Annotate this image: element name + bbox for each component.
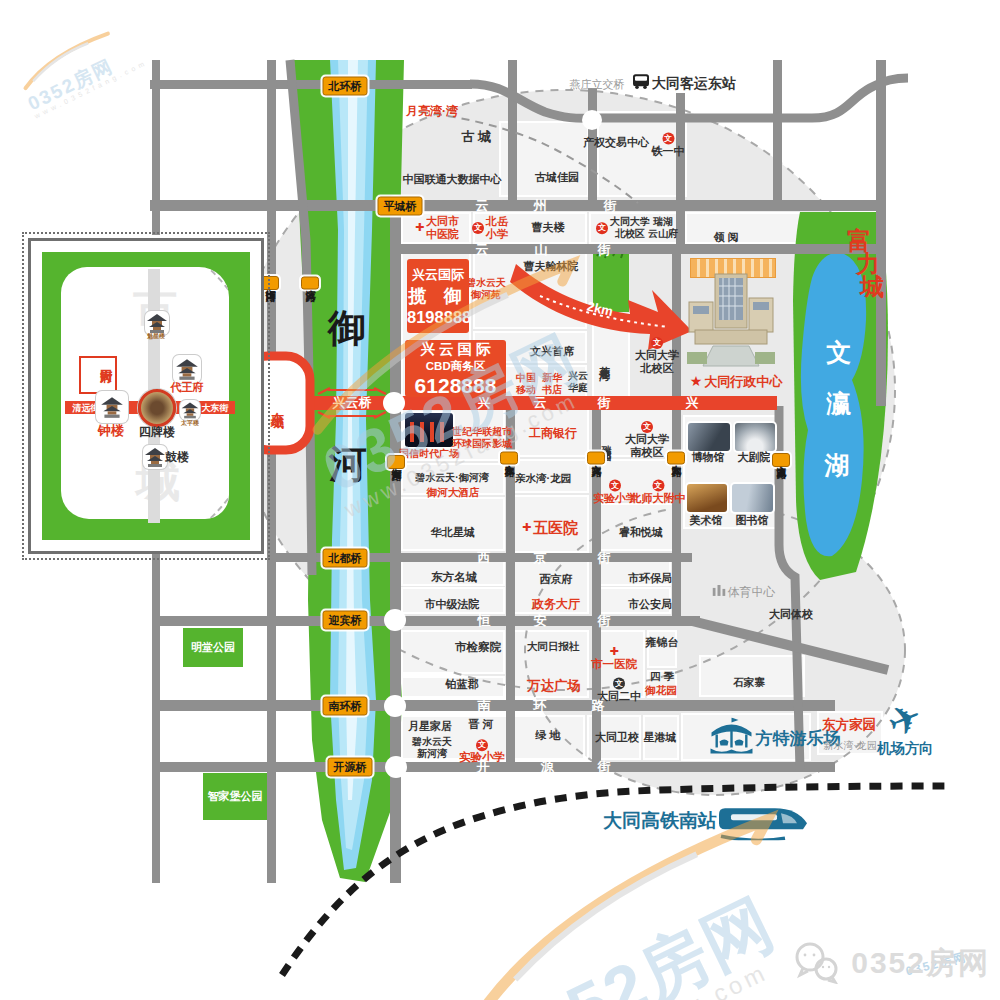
poi-yuexing-jiaju: 月星家居 xyxy=(408,720,452,733)
poi-tieyizhong: 文铁一中 xyxy=(652,133,685,158)
poi-lingyue: 领 阅 xyxy=(713,231,738,244)
daiwangfu-icon xyxy=(173,355,201,383)
poi-label: 大同大学 北校区 xyxy=(610,216,650,240)
poi-guchengjiayuan: 古城佳园 xyxy=(535,171,579,184)
poi-label: 西京府 xyxy=(540,573,573,586)
poi-label: 政务大厅 xyxy=(532,597,580,611)
poi-label: 大同高铁南站 xyxy=(603,810,717,832)
photo-label-tushuguan: 图书馆 xyxy=(736,514,769,527)
inset-poi-sipailou: 四牌楼 xyxy=(139,425,175,439)
poi-label: 铁一中 xyxy=(652,145,685,158)
poi-yuhuayuan: 御花园 xyxy=(645,684,677,696)
dato-fujie-stamp: 大同府街 xyxy=(79,356,117,394)
poi-label: 大同日报社 xyxy=(527,640,580,652)
inset-poi-daiwangfu: 代王府 xyxy=(171,381,204,394)
adbox-lanyu: 兴云国际揽 御8198888 xyxy=(407,259,469,333)
street-char: 云 xyxy=(534,394,547,412)
park-label: 智家堡公园 xyxy=(208,789,263,804)
street-char: 环 xyxy=(534,697,547,715)
poi-lvdi: 绿 地 xyxy=(535,729,560,742)
poi-label: 北岳 小学 xyxy=(486,215,508,241)
poi-label: 中国联通大数据中心 xyxy=(403,173,502,186)
poi-jichang-fangxiang: ✈机场方向 xyxy=(877,700,933,757)
bridge-label: 北环桥 xyxy=(323,77,368,96)
poi-yanzhuang: 燕庄立交桥 xyxy=(570,78,625,91)
poi-gaotie-nanzhan: 大同高铁南站 xyxy=(603,796,809,845)
poi-label: 万达广场 xyxy=(527,678,581,694)
poi-caofulou: 曹夫楼 xyxy=(532,221,565,234)
street-char: 街 xyxy=(598,394,611,412)
poi-shiji-hualian: 世纪华联超市 环球国际影城 xyxy=(452,426,512,450)
poi-label: 曹夫翰林院 xyxy=(524,260,579,273)
poi-bishui-yuheyuan: 碧水云天 御河苑 xyxy=(466,277,506,301)
school-icon: 文 xyxy=(651,337,663,349)
poi-keyun-dongzhan: 大同客运东站 xyxy=(632,73,736,93)
poi-fangte: 方特游乐场 xyxy=(710,717,841,760)
poi-label: 睿和悦城 xyxy=(619,526,663,539)
poi-datong-tixiao: 大同体校 xyxy=(769,608,813,621)
poi-label: 国信时代广场 xyxy=(399,448,459,460)
poi-label: 月亮湾·湾 xyxy=(406,104,458,118)
lake-char: 文 xyxy=(827,338,852,368)
poi-label: 市环保局 xyxy=(628,572,672,585)
street-char: 路 xyxy=(592,697,605,715)
adbox-line: 揽 御 xyxy=(407,284,469,308)
poi-dongfang-jiayuan: 东方家园 xyxy=(822,717,876,733)
star-icon: ★ xyxy=(690,373,703,390)
street-char: 街 xyxy=(598,758,611,776)
poi-gonganju: 市公安局 xyxy=(628,598,672,611)
poi-ruixing-huayuan: 瑞兴花园 xyxy=(600,437,612,445)
inset-poi-gulou: 鼓楼 xyxy=(165,450,189,464)
poi-label: 古城佳园 xyxy=(535,171,579,184)
poi-huanbaoju: 市环保局 xyxy=(628,572,672,585)
adbox-line: 8198888 xyxy=(407,308,469,327)
lake-char: 湖 xyxy=(825,451,850,481)
park-mingtang: 明堂公园 xyxy=(183,628,243,667)
photo-label-dajuyuan: 大剧院 xyxy=(738,451,771,464)
bridge-label: 开源桥 xyxy=(328,758,373,777)
road-label: 永和路 xyxy=(500,452,518,465)
school-icon: 文 xyxy=(472,222,484,234)
taipinglou-icon xyxy=(180,400,200,420)
poi-label: 四 季 xyxy=(650,670,674,682)
poi-yongjintai: 雍锦台 xyxy=(646,636,679,649)
site-logo-text: 0352房网 xyxy=(851,943,990,984)
road-label: 御河东路 xyxy=(387,455,405,469)
poi-label: 中国 移动 xyxy=(516,372,536,396)
poi-label: 新水湾·龙园 xyxy=(823,740,876,752)
poi-xingyun-huating: 兴云 华庭 xyxy=(568,370,588,394)
poi-beiyue-xiaoxue: 文北岳 小学 xyxy=(472,215,508,241)
poi-label: 东方名城 xyxy=(431,571,477,585)
photo-label-meishuguan: 美术馆 xyxy=(690,514,723,527)
poi-label: 晋 河 xyxy=(468,718,493,731)
poi-ribaoshe: 大同日报社 xyxy=(527,640,580,652)
poi-wenxing-shouxi: 文兴首席 xyxy=(530,345,574,358)
poi-huabei-xingcheng: 华北星城 xyxy=(431,526,475,539)
bus-icon xyxy=(632,73,650,93)
poi-label: 绿 地 xyxy=(535,729,560,742)
poi-zhongguo-yidong: 中国 移动 xyxy=(516,372,536,396)
poi-label: 御河大酒店 xyxy=(427,486,480,498)
street-char: 州 xyxy=(534,197,547,215)
school-icon: 文 xyxy=(662,133,674,145)
poi-label: 世纪华联超市 环球国际影城 xyxy=(452,426,512,450)
poi-label: 产权交易中心 xyxy=(583,136,649,149)
poi-label: 大同市 中医院 xyxy=(426,215,459,241)
school-icon: 文 xyxy=(641,421,653,433)
street-char: 山 xyxy=(535,241,548,259)
inset-road-right: 大东街 xyxy=(202,403,229,414)
poi-bolanjun: 铂蓝郡 xyxy=(446,678,479,691)
park-zhijiabu: 智家堡公园 xyxy=(203,773,267,820)
poi-label: 碧水云天 御河苑 xyxy=(466,277,506,301)
poi-guoxin-shidai: 国信时代广场 xyxy=(399,448,459,460)
poi-gongshang-yinhang: 工商银行 xyxy=(529,426,577,440)
poi-zhengwu-dating: 政务大厅 xyxy=(532,597,580,611)
poi-bishui-xinhewan: 碧水云天 新河湾 xyxy=(412,736,452,760)
poi-label: 文兴首席 xyxy=(530,345,574,358)
poi-label: 大同大学 北校区 xyxy=(635,349,679,375)
adbox-cbd: 兴 云 国 际CBD商务区6128888 xyxy=(405,340,506,397)
poi-xinhua-shudian: 新华 书店 xyxy=(542,372,562,396)
poi-label: 大同大学 南校区 xyxy=(625,433,669,459)
poi-label: 市一医院 xyxy=(591,658,637,672)
poi-xingzheng-zhongxin: ★大同行政中心 xyxy=(690,373,783,390)
adbox-line: CBD商务区 xyxy=(405,359,506,374)
poi-label: 花鹿湾 xyxy=(598,357,611,363)
road-label: 滨河路 xyxy=(301,277,319,290)
bridge-label: 迎宾桥 xyxy=(323,611,368,630)
poi-label: 曹夫楼 xyxy=(532,221,565,234)
photo-label-bowuguan: 博物馆 xyxy=(692,451,725,464)
inset-poi-kuixinglou: 魁星楼 xyxy=(147,333,165,340)
poi-label: 新华 书店 xyxy=(542,372,562,396)
poi-qinshuiwan-longyuan: 亲水湾·龙园 xyxy=(515,472,571,484)
school-icon: 文 xyxy=(476,739,488,751)
poi-datong-weixiao: 大同卫校 xyxy=(595,731,639,744)
street-char: 云 xyxy=(476,241,489,259)
gym-icon xyxy=(713,585,726,599)
poi-hualuwan: 花鹿湾 xyxy=(598,357,611,363)
poi-gucheng: 古 城 xyxy=(461,129,491,144)
poi-label: 华北星城 xyxy=(431,526,475,539)
poi-label: 雍锦台 xyxy=(646,636,679,649)
datong-location-map: 古城清远街大东街大同府街魁星楼代王府钟楼四牌楼太平楼鼓楼 0352房网 www.… xyxy=(0,0,1000,1000)
old-town-inset-map: 古城清远街大东街大同府街魁星楼代王府钟楼四牌楼太平楼鼓楼 xyxy=(28,238,264,554)
hospital-icon: ✚ xyxy=(415,222,424,235)
poi-zhongyiyuan: ✚大同市 中医院 xyxy=(415,215,459,241)
poi-xinshuiwan-longyuan: 新水湾·龙园 xyxy=(823,740,876,752)
street-char: 云 xyxy=(476,197,489,215)
school-icon: 文 xyxy=(609,480,621,492)
poi-datong-univ-south: 文大同大学 南校区 xyxy=(625,421,669,459)
poi-shiyi-yiyuan: ✚市一医院 xyxy=(591,645,637,672)
adbox-line: 兴云国际 xyxy=(407,266,469,284)
poi-label: 亲水湾·龙园 xyxy=(515,472,571,484)
poi-label: 铂蓝郡 xyxy=(446,678,479,691)
poi-label: 北师大附中 xyxy=(631,492,686,505)
poi-label: 瑞湖 云山府 xyxy=(648,216,678,240)
poi-zhongji-fayuan: 市中级法院 xyxy=(425,598,480,611)
bridge-label: 平城桥 xyxy=(378,197,423,216)
school-icon: 文 xyxy=(652,480,664,492)
lake-char: 瀛 xyxy=(827,389,852,419)
street-char: 南 xyxy=(478,697,491,715)
poi-datacenter: 中国联通大数据中心 xyxy=(403,173,502,186)
street-char: 街 xyxy=(598,241,611,259)
fuli-char: 城 xyxy=(860,273,884,301)
school-icon: 文 xyxy=(596,222,608,234)
zhonglou-icon xyxy=(96,391,128,423)
inset-poi-taipinglou: 太平楼 xyxy=(181,420,199,427)
road-label: 太和路 xyxy=(667,452,685,465)
street-char: 安 xyxy=(534,612,547,630)
poi-label: 东方家园 xyxy=(822,717,876,733)
poi-label: 石家寨 xyxy=(733,676,765,688)
kuixinglou-icon xyxy=(145,311,169,335)
poi-dongfang-mingcheng: 东方名城 xyxy=(431,571,477,585)
poi-jinhe: 晋 河 xyxy=(468,718,493,731)
street-char: 京 xyxy=(534,549,547,567)
poi-label: 兴云 华庭 xyxy=(568,370,588,394)
road-label: 文瀛南路 xyxy=(772,453,790,467)
poi-siji: 四 季 xyxy=(650,670,674,682)
poi-label: 星港城 xyxy=(644,731,677,744)
poi-label: 体育中心 xyxy=(728,585,776,599)
poi-chanquan: 产权交易中心 xyxy=(583,136,649,149)
poi-label: 市检察院 xyxy=(455,641,501,655)
poi-datong-univ-north-2: 文大同大学 北校区 xyxy=(635,337,679,375)
plane-icon: ✈ xyxy=(882,695,928,745)
poi-label: 市中级法院 xyxy=(425,598,480,611)
poi-xinggangcheng: 星港城 xyxy=(644,731,677,744)
poi-jianchayuan: 市检察院 xyxy=(455,641,501,655)
river-char: 河 xyxy=(329,442,367,487)
arrow-2km-label: 2km xyxy=(586,299,615,320)
poi-wanda-guangchang: 万达广场 xyxy=(527,678,581,694)
xingyun-bridge-label: 兴云桥 xyxy=(333,395,372,410)
street-char: 街 xyxy=(598,549,611,567)
hospital-icon: ✚ xyxy=(522,522,531,535)
poi-label: 大同体校 xyxy=(769,608,813,621)
street-char: 西 xyxy=(478,549,491,567)
school-dark-icon: 文 xyxy=(613,678,625,690)
poi-label: 市公安局 xyxy=(628,598,672,611)
poi-label: 工商银行 xyxy=(529,426,577,440)
gulou-icon xyxy=(143,445,167,469)
poi-label: 碧水云天 新河湾 xyxy=(412,736,452,760)
street-char: 兴 xyxy=(686,394,699,412)
poi-label: 碧水云天·御河湾 xyxy=(415,472,488,484)
poi-label: 御花园 xyxy=(645,684,677,696)
street-char: 源 xyxy=(541,758,554,776)
poi-label: 古 城 xyxy=(461,129,491,144)
bridge-label: 南环桥 xyxy=(323,697,368,716)
poi-label: 大同行政中心 xyxy=(704,373,782,388)
poi-yuhe-dajiudian: 御河大酒店 xyxy=(427,486,480,498)
adbox-line: 兴 云 国 际 xyxy=(405,340,506,359)
poi-caofu-hanlin: 曹夫翰林院 xyxy=(524,260,579,273)
street-char: 街 xyxy=(604,197,617,215)
bridge-label: 北都桥 xyxy=(323,549,368,568)
dongxiaocheng-label: 东小城 xyxy=(269,401,284,407)
poi-tiyu-zhongxin: 体育中心 xyxy=(713,585,776,599)
poi-label: 燕庄立交桥 xyxy=(570,78,625,91)
hospital-icon: ✚ xyxy=(609,645,618,658)
road-label: 文兴路 xyxy=(587,452,605,465)
poi-shijiazhai: 石家寨 xyxy=(733,676,765,688)
park-label: 明堂公园 xyxy=(191,640,235,655)
poi-beishida-fuzhong: 文北师大附中 xyxy=(631,480,686,505)
wechat-icon xyxy=(793,942,841,984)
site-logo: 0352房网 xyxy=(793,942,990,984)
river-char: 御 xyxy=(328,306,366,351)
street-char: 开 xyxy=(477,758,490,776)
poi-xijingfu: 西京府 xyxy=(540,573,573,586)
poi-datong-univ-north-1: 文大同大学 北校区 xyxy=(596,216,650,240)
poi-bishui-yuhewan: 碧水云天·御河湾 xyxy=(415,472,488,484)
train-icon xyxy=(719,796,809,845)
poi-ruihu-yunshanfu: 瑞湖 云山府 xyxy=(648,216,678,240)
poi-label: 瑞兴花园 xyxy=(600,437,612,445)
poi-ruihe-yuecheng: 睿和悦城 xyxy=(619,526,663,539)
street-char: 恒 xyxy=(478,612,491,630)
carousel-icon xyxy=(710,717,754,760)
poi-wuyiyuan: ✚五医院 xyxy=(522,519,578,537)
sipailou-icon xyxy=(138,389,176,427)
poi-label: 大同客运东站 xyxy=(652,75,736,92)
inset-poi-zhonglou: 钟楼 xyxy=(98,423,124,438)
poi-label: 五医院 xyxy=(533,519,578,537)
poi-yueliangwan: 月亮湾·湾 xyxy=(406,104,458,118)
adbox-line: 6128888 xyxy=(405,374,506,398)
poi-label: 领 阅 xyxy=(713,231,738,244)
poi-label: 月星家居 xyxy=(408,720,452,733)
poi-label: 大同卫校 xyxy=(595,731,639,744)
street-char: 街 xyxy=(598,612,611,630)
